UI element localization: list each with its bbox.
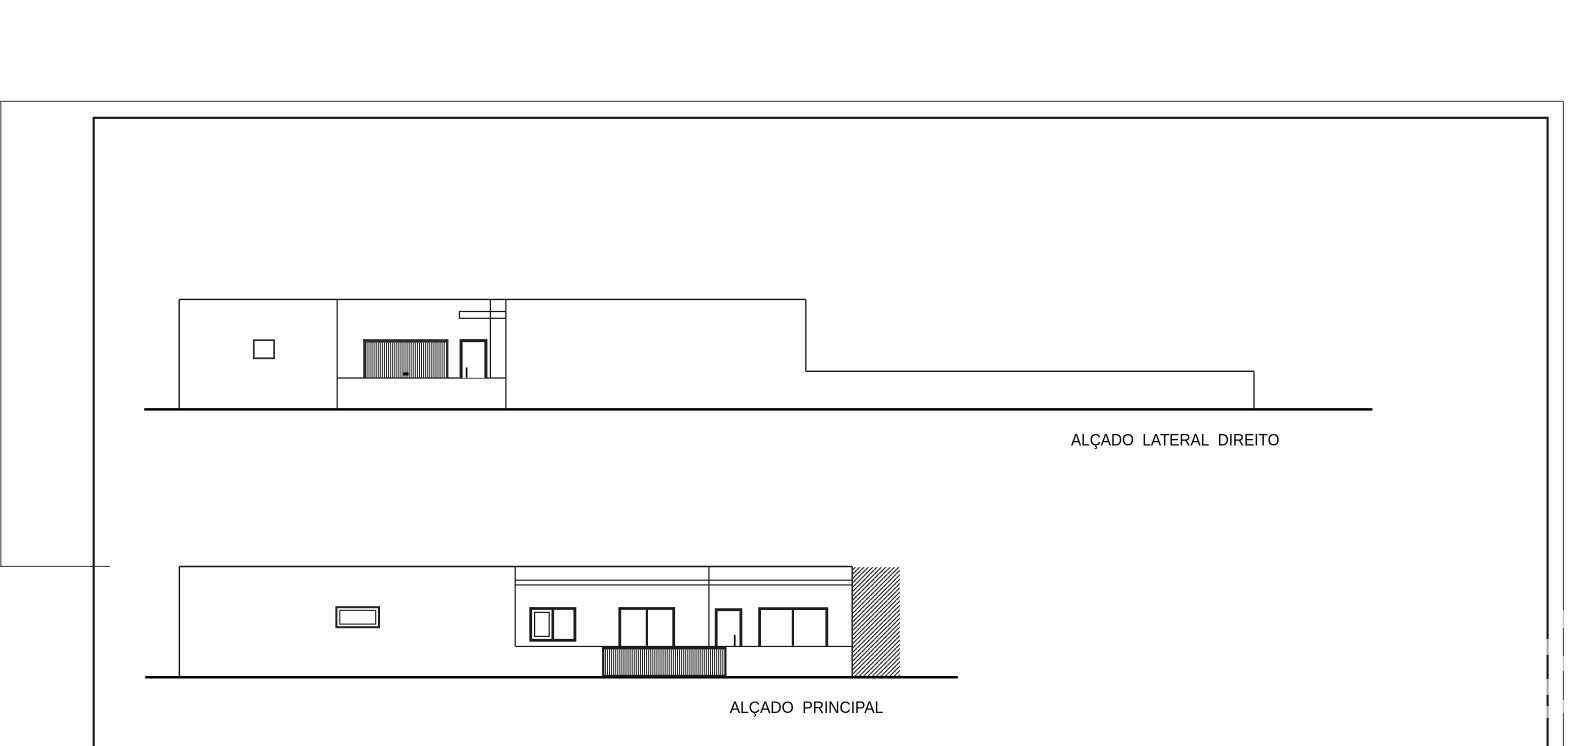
svg-text:ALÇADO PRINCIPAL: ALÇADO PRINCIPAL — [730, 698, 884, 717]
svg-text:ALÇADO LATERAL DIREITO: ALÇADO LATERAL DIREITO — [1071, 431, 1280, 450]
